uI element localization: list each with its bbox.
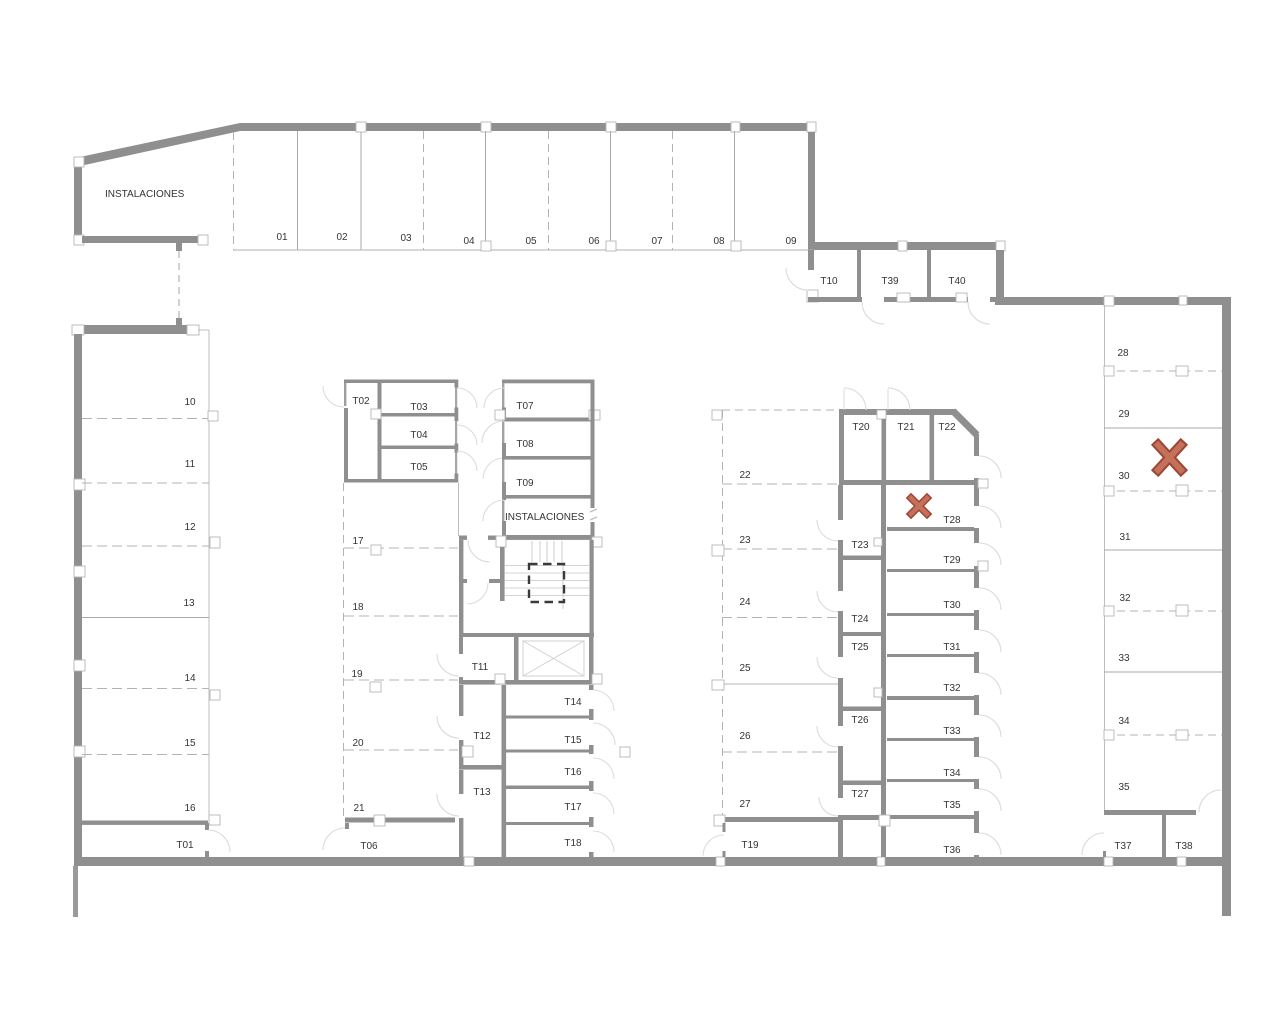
- svg-text:35: 35: [1118, 782, 1130, 793]
- svg-text:12: 12: [184, 522, 196, 533]
- svg-text:14: 14: [184, 673, 196, 684]
- svg-text:13: 13: [183, 598, 195, 609]
- svg-text:T40: T40: [948, 276, 966, 287]
- svg-text:T28: T28: [943, 515, 961, 526]
- svg-text:T03: T03: [410, 402, 428, 413]
- svg-text:10: 10: [184, 397, 196, 408]
- svg-text:22: 22: [739, 470, 751, 481]
- svg-text:T35: T35: [943, 800, 961, 811]
- svg-text:T38: T38: [1175, 841, 1193, 852]
- svg-text:T14: T14: [564, 697, 582, 708]
- svg-text:19: 19: [351, 669, 363, 680]
- svg-text:11: 11: [185, 459, 196, 470]
- svg-text:T04: T04: [410, 430, 428, 441]
- svg-text:03: 03: [400, 233, 412, 244]
- svg-text:T32: T32: [943, 683, 961, 694]
- svg-text:T36: T36: [943, 845, 961, 856]
- svg-text:25: 25: [739, 663, 751, 674]
- svg-text:T25: T25: [851, 642, 869, 653]
- svg-text:T33: T33: [943, 726, 961, 737]
- svg-text:T08: T08: [516, 439, 534, 450]
- svg-text:29: 29: [1118, 409, 1130, 420]
- svg-text:06: 06: [588, 236, 600, 247]
- svg-text:T06: T06: [360, 841, 378, 852]
- svg-text:T07: T07: [516, 401, 534, 412]
- svg-text:01: 01: [276, 232, 288, 243]
- svg-text:T17: T17: [564, 802, 582, 813]
- svg-text:T31: T31: [943, 642, 961, 653]
- svg-text:T19: T19: [741, 840, 759, 851]
- svg-text:16: 16: [184, 803, 196, 814]
- svg-text:04: 04: [463, 236, 475, 247]
- svg-text:02: 02: [336, 232, 348, 243]
- svg-text:T39: T39: [881, 276, 899, 287]
- svg-text:T22: T22: [938, 422, 956, 433]
- svg-text:T12: T12: [473, 731, 491, 742]
- svg-text:05: 05: [525, 236, 537, 247]
- svg-text:23: 23: [739, 535, 751, 546]
- svg-text:31: 31: [1119, 532, 1131, 543]
- svg-text:30: 30: [1118, 471, 1130, 482]
- svg-text:T10: T10: [820, 276, 838, 287]
- svg-text:T01: T01: [176, 840, 194, 851]
- svg-text:24: 24: [739, 597, 751, 608]
- svg-text:T02: T02: [352, 396, 370, 407]
- svg-text:T34: T34: [943, 768, 961, 779]
- svg-text:T26: T26: [851, 715, 869, 726]
- svg-text:09: 09: [785, 236, 797, 247]
- svg-text:INSTALACIONES: INSTALACIONES: [505, 512, 585, 523]
- svg-text:18: 18: [352, 602, 364, 613]
- svg-text:T11: T11: [472, 662, 489, 673]
- svg-text:15: 15: [184, 738, 196, 749]
- svg-text:T16: T16: [564, 767, 582, 778]
- svg-text:T05: T05: [410, 462, 428, 473]
- svg-text:34: 34: [1118, 716, 1130, 727]
- svg-text:T23: T23: [851, 540, 869, 551]
- svg-text:T21: T21: [897, 422, 915, 433]
- svg-text:INSTALACIONES: INSTALACIONES: [105, 189, 185, 200]
- svg-text:T27: T27: [851, 789, 869, 800]
- svg-text:T30: T30: [943, 600, 961, 611]
- svg-text:26: 26: [739, 731, 751, 742]
- svg-text:32: 32: [1119, 593, 1131, 604]
- svg-text:20: 20: [352, 738, 364, 749]
- svg-text:17: 17: [352, 536, 364, 547]
- svg-text:T37: T37: [1114, 841, 1132, 852]
- svg-text:08: 08: [713, 236, 725, 247]
- svg-text:27: 27: [739, 799, 751, 810]
- svg-text:T09: T09: [516, 478, 534, 489]
- svg-text:T18: T18: [564, 838, 582, 849]
- svg-text:T24: T24: [851, 614, 869, 625]
- svg-text:07: 07: [651, 236, 663, 247]
- svg-text:T20: T20: [852, 422, 870, 433]
- svg-text:T15: T15: [564, 735, 582, 746]
- svg-text:28: 28: [1117, 348, 1129, 359]
- svg-text:33: 33: [1118, 653, 1130, 664]
- svg-text:T29: T29: [943, 555, 961, 566]
- svg-text:T13: T13: [473, 787, 491, 798]
- svg-text:21: 21: [353, 803, 365, 814]
